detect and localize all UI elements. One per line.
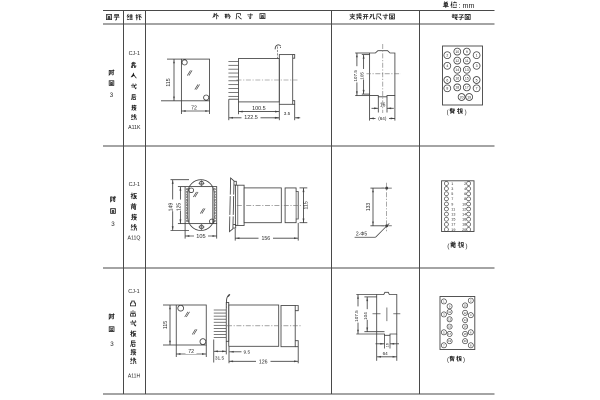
svg-text:14: 14 [464,318,467,322]
svg-text:115: 115 [166,78,172,86]
svg-text:107.5: 107.5 [353,70,358,82]
svg-text:12: 12 [462,207,466,211]
svg-text:2: 2 [446,53,448,57]
svg-text:12: 12 [464,311,467,315]
svg-text:12: 12 [455,59,459,63]
svg-text:19: 19 [448,339,451,343]
svg-text:104: 104 [363,312,368,320]
svg-text:1: 1 [451,182,453,186]
svg-text:10: 10 [464,303,467,307]
svg-text:20: 20 [464,339,467,343]
svg-text:CJ-1: CJ-1 [129,51,140,57]
svg-text:): ) [465,110,467,116]
svg-text:16: 16 [462,218,466,222]
svg-text:2-Φ5: 2-Φ5 [356,232,367,238]
svg-text:17: 17 [451,223,455,227]
svg-text:107.5: 107.5 [354,310,359,322]
svg-text:10: 10 [462,202,466,206]
svg-text:20: 20 [462,228,466,232]
svg-text:16: 16 [464,325,467,329]
svg-text:CJ-1: CJ-1 [129,182,140,188]
svg-text:115: 115 [163,321,169,329]
svg-text:11: 11 [465,59,469,63]
svg-text:(64): (64) [378,116,387,121]
svg-text:3: 3 [111,221,115,228]
svg-text:10: 10 [455,50,459,54]
svg-text:19: 19 [467,95,471,99]
svg-text:7: 7 [476,87,478,91]
svg-text:7: 7 [451,197,453,201]
svg-text:72: 72 [191,105,197,111]
svg-text:13: 13 [451,213,455,217]
svg-text:1: 1 [476,53,478,57]
svg-text:9.5: 9.5 [244,350,251,356]
svg-text:5: 5 [476,78,478,82]
svg-text:17: 17 [448,332,451,336]
svg-text:14: 14 [455,68,459,72]
svg-text:133: 133 [366,203,372,212]
svg-text:18: 18 [462,223,466,227]
svg-text:(: ( [447,357,449,363]
svg-text:9: 9 [466,50,468,54]
svg-text:15: 15 [465,76,469,80]
svg-text:122.5: 122.5 [244,115,258,121]
svg-text:19: 19 [451,228,455,232]
svg-text:16: 16 [385,343,389,347]
svg-text:105: 105 [196,234,205,240]
svg-text:126: 126 [259,359,268,365]
svg-text:3: 3 [110,92,114,99]
svg-text:16: 16 [380,103,386,109]
svg-text:8: 8 [464,197,466,201]
svg-text:: mm: : mm [459,1,475,10]
svg-text:A11H: A11H [128,374,141,380]
svg-text:14: 14 [462,213,466,217]
svg-text:18: 18 [455,86,459,90]
svg-text:A11K: A11K [128,125,141,131]
svg-text:A11Q: A11Q [128,236,141,242]
svg-text:13: 13 [465,68,469,72]
svg-text:3: 3 [110,341,114,348]
svg-text:31.5: 31.5 [215,356,225,362]
svg-text:15: 15 [451,218,455,222]
svg-text:18: 18 [464,332,467,336]
svg-text:2: 2 [464,182,466,186]
svg-text:72: 72 [188,349,194,355]
svg-text:16: 16 [455,76,459,80]
svg-text:9: 9 [451,202,453,206]
svg-text:105: 105 [360,72,365,80]
svg-text:CJ-1: CJ-1 [128,289,139,295]
svg-text:125: 125 [176,203,182,212]
svg-text:115: 115 [303,201,309,209]
svg-text:6: 6 [446,78,448,82]
svg-text:4: 4 [446,64,448,68]
svg-text:): ) [463,357,465,363]
svg-text:(: ( [447,110,449,116]
svg-text:64: 64 [383,351,389,356]
svg-text:3: 3 [476,64,478,68]
svg-text:3: 3 [451,187,453,191]
svg-text:11: 11 [451,207,455,211]
svg-text:149: 149 [169,203,175,212]
svg-text:): ) [465,243,467,250]
svg-text:8: 8 [446,87,448,91]
svg-text:100.5: 100.5 [252,106,266,112]
svg-text:6: 6 [464,192,466,196]
svg-text:156: 156 [261,236,270,242]
svg-text:15: 15 [448,325,451,329]
svg-text:5: 5 [451,192,453,196]
svg-text:3.5: 3.5 [284,111,291,116]
svg-text:4: 4 [464,187,466,191]
svg-text:17: 17 [465,86,469,90]
svg-text:20: 20 [460,95,464,99]
svg-text:13: 13 [448,317,451,321]
